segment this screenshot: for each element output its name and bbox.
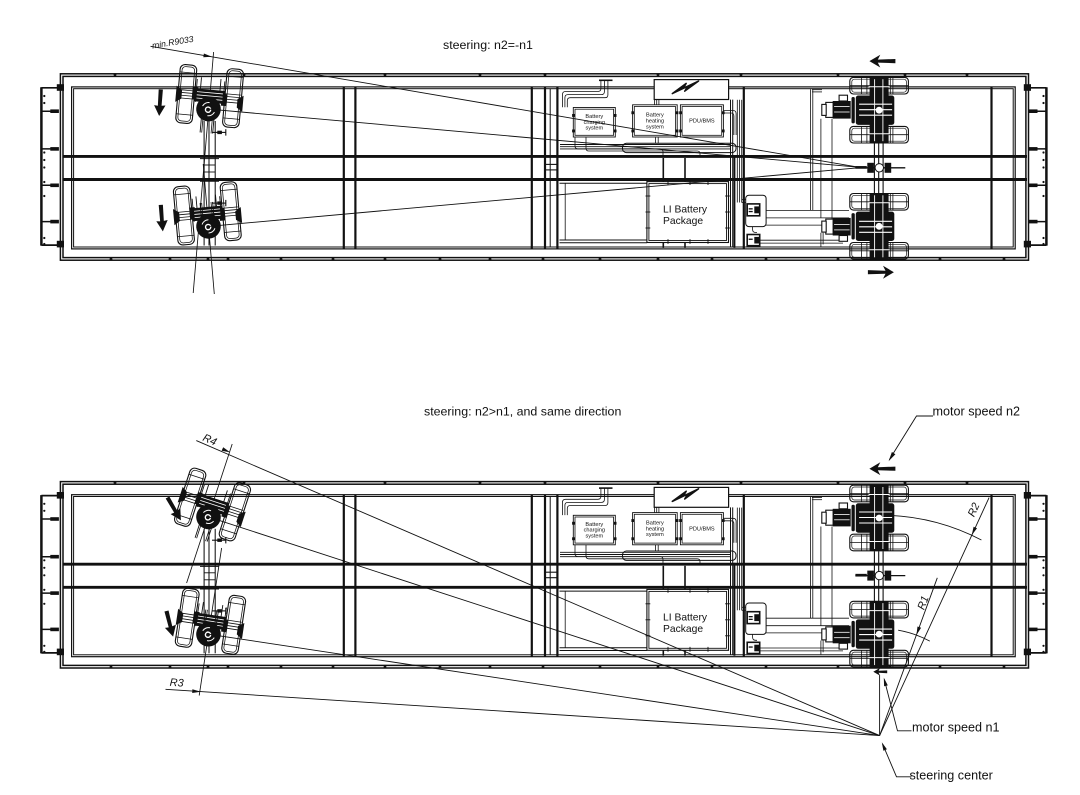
svg-text:steering: n2>n1, and same dir: steering: n2>n1, and same direction <box>424 404 621 418</box>
svg-text:R3: R3 <box>169 677 184 690</box>
svg-text:steering center: steering center <box>910 769 993 783</box>
svg-text:motor speed n2: motor speed n2 <box>933 404 1021 418</box>
svg-text:steering: n2=-n1: steering: n2=-n1 <box>443 38 533 52</box>
svg-text:motor speed n1: motor speed n1 <box>912 720 1000 734</box>
